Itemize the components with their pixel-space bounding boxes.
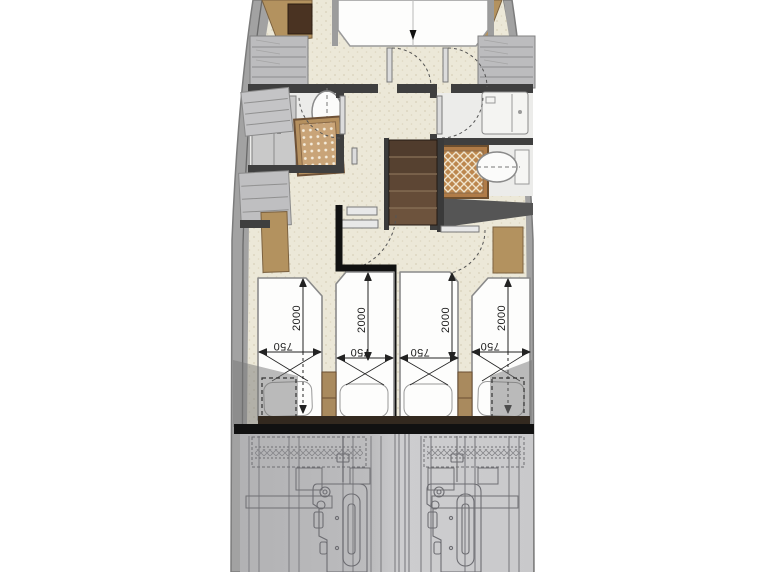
deck-separator — [234, 424, 534, 434]
bed-length-label: 2000 — [356, 307, 368, 333]
floor-plan-svg: 2000 750 2000 750 2000 750 2000 750 — [0, 0, 763, 572]
bed-length-label: 2000 — [496, 305, 508, 331]
yacht-floor-plan: 2000 750 2000 750 2000 750 2000 750 — [0, 0, 763, 572]
forward-cabin — [248, 0, 535, 93]
shower-door — [437, 96, 442, 134]
toilet — [477, 150, 529, 184]
bed-width-label: 750 — [350, 346, 370, 358]
bed-width-label: 750 — [273, 340, 293, 352]
starboard-bathroom — [430, 84, 533, 230]
bed-width-label: 750 — [480, 340, 500, 352]
double-bed — [338, 0, 488, 46]
companionway-stairs — [384, 138, 444, 232]
bathroom-door — [340, 96, 345, 134]
bed-width-label: 750 — [410, 346, 430, 358]
bed-length-label: 2000 — [440, 307, 452, 333]
wardrobe-port-interior — [288, 4, 312, 34]
shelf-unit-port — [250, 36, 308, 88]
cabin-door-starboard — [441, 226, 479, 232]
pillow — [340, 384, 388, 417]
drawer-stack-upper — [241, 87, 293, 136]
twin-guest-beds: 2000 750 2000 750 2000 750 2000 750 — [258, 272, 530, 424]
port-bathroom — [241, 84, 345, 176]
stair-treads — [389, 140, 437, 225]
wood-panel-starboard — [493, 227, 523, 273]
engine-room — [234, 416, 534, 572]
bed-length-label: 2000 — [291, 305, 303, 331]
sink-console — [482, 92, 528, 134]
pillow — [404, 384, 452, 417]
